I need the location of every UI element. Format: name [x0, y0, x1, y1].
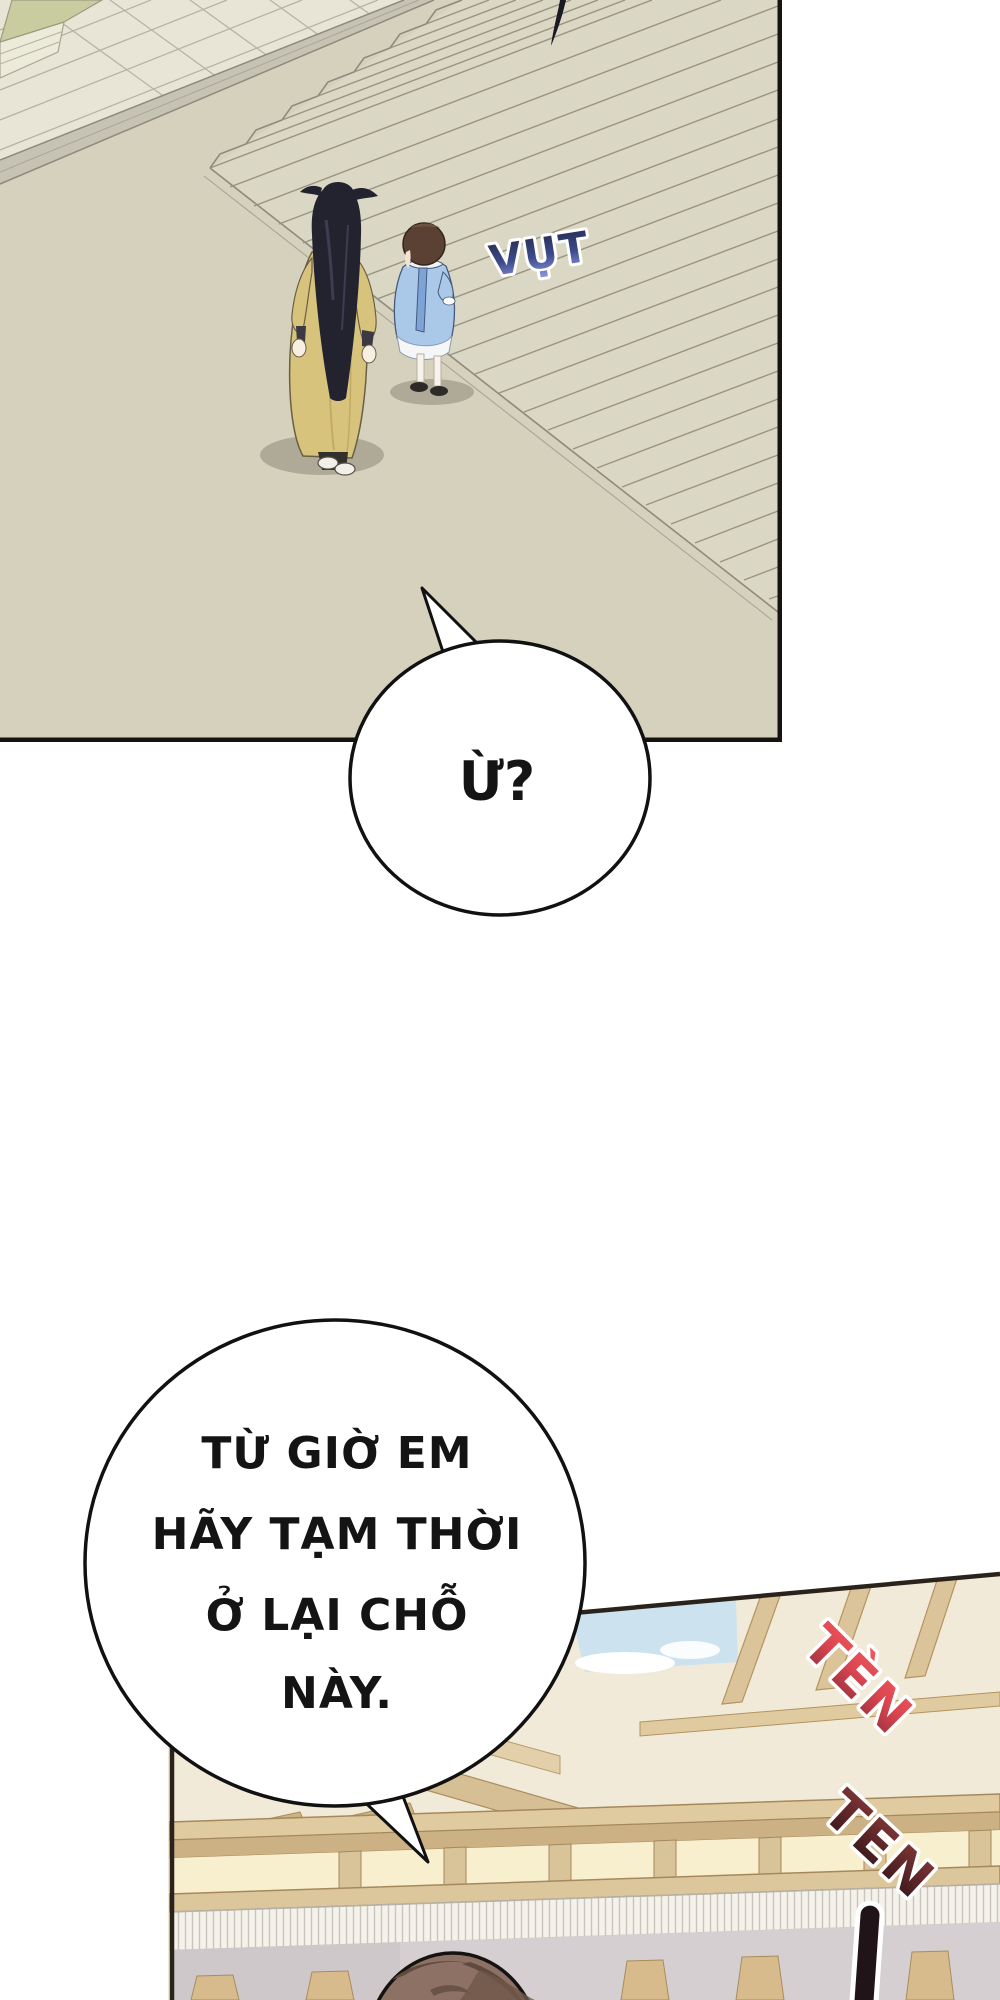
railing-post: [759, 1837, 781, 1876]
comic-art: VỤT Ừ?: [0, 0, 1000, 2000]
railing-post: [549, 1844, 571, 1883]
shoe: [335, 463, 355, 475]
shoe: [410, 382, 428, 392]
bubble-large-line-2: HÃY TẠM THỜI: [152, 1507, 523, 1560]
bubble-large-line-1: TỪ GIỜ EM: [201, 1426, 472, 1479]
comic-page: VỤT Ừ?: [0, 0, 1000, 2000]
railing-post: [654, 1840, 676, 1879]
cloud: [660, 1641, 720, 1659]
railing-post: [969, 1830, 991, 1869]
panel-top-courtyard: [0, 0, 782, 742]
sfx-stroke: [851, 1902, 883, 2000]
bubble-large-line-3: Ở LẠI CHỖ: [205, 1582, 468, 1641]
shoe: [430, 386, 448, 396]
bubble-large-line-4: NÀY.: [281, 1666, 393, 1719]
sky-opening: [565, 1570, 738, 1674]
panel-border: [778, 0, 783, 742]
cloud: [575, 1652, 675, 1674]
railing-post: [339, 1851, 361, 1890]
bubble-small-text: Ừ?: [459, 750, 535, 813]
railing-post: [444, 1847, 466, 1886]
